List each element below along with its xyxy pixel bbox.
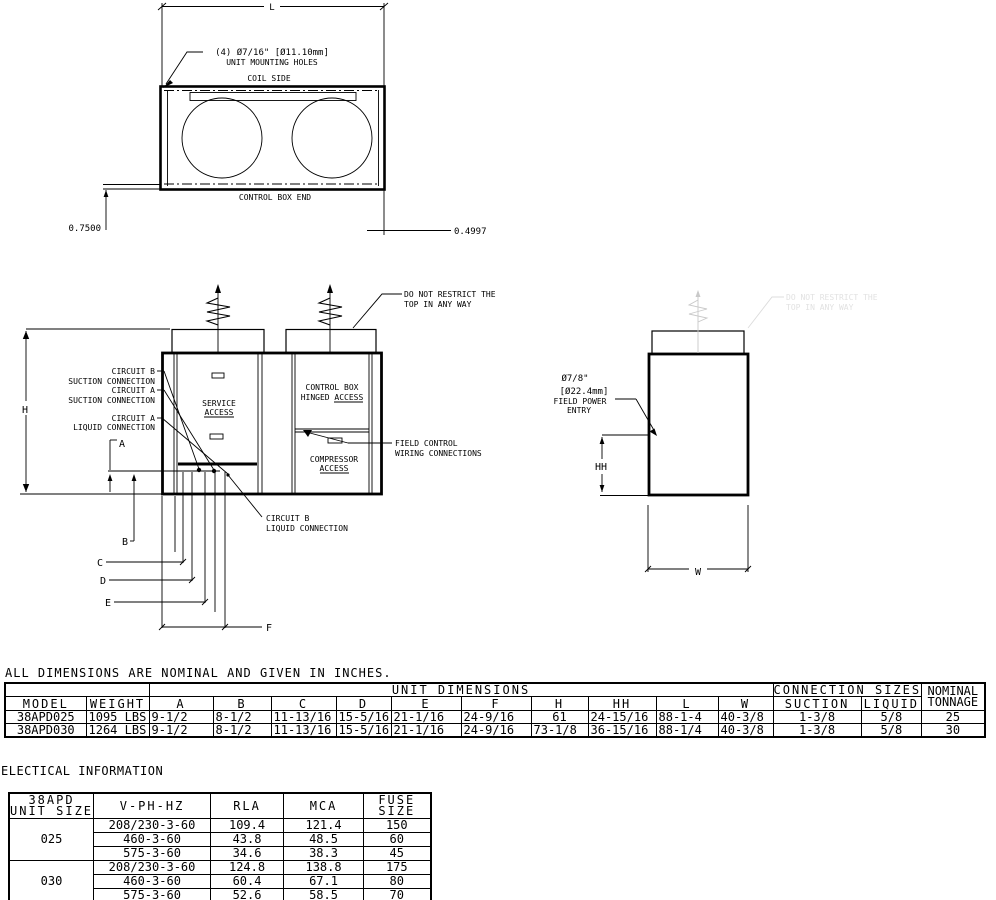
dim-l-label: L: [269, 3, 274, 13]
mounting-holes-label-2: UNIT MOUNTING HOLES: [226, 58, 318, 67]
col-model: MODEL: [5, 697, 86, 711]
dim-cell: 15-5/16: [336, 724, 391, 738]
control-box-label-1: CONTROL BOX: [306, 383, 359, 392]
rla-cell: 109.4: [211, 818, 284, 832]
fuse-size-header: FUSE SIZE: [364, 793, 431, 818]
dim-cell: 21-1/16: [391, 724, 461, 738]
dimensions-note: ALL DIMENSIONS ARE NOMINAL AND GIVEN IN …: [5, 666, 392, 680]
voltage-cell: 208/230-3-60: [94, 860, 211, 874]
table-row: 025 208/230-3-60 109.4 121.4 150: [9, 818, 431, 832]
fuse-cell: 60: [364, 832, 431, 846]
electrical-table: 38APD UNIT SIZE V-PH-HZ RLA MCA FUSE SIZ…: [8, 792, 432, 900]
dim-cell: 24-15/16: [588, 711, 656, 724]
col-h: H: [531, 697, 588, 711]
col-l: L: [656, 697, 718, 711]
mca-cell: 138.8: [284, 860, 364, 874]
service-access-label-2: ACCESS: [205, 408, 234, 417]
tonnage-label: TONNAGE: [928, 695, 979, 709]
dim-b-label: B: [122, 537, 128, 548]
unit-dimensions-table: UNIT DIMENSIONS CONNECTION SIZES NOMINAL…: [4, 682, 986, 738]
circuit-a-suction-label-2: SUCTION CONNECTION: [68, 396, 155, 405]
dim-cell: 61: [531, 711, 588, 724]
dim-h-label: H: [22, 405, 28, 416]
do-not-restrict-label-1: DO NOT RESTRICT THE: [404, 290, 496, 299]
dim-cell: 88-1-4: [656, 711, 718, 724]
dim-e-label: E: [105, 598, 111, 609]
suction-cell: 1-3/8: [773, 711, 861, 724]
voltage-cell: 575-3-60: [94, 888, 211, 900]
col-weight: WEIGHT: [86, 697, 149, 711]
vphhz-header: V-PH-HZ: [94, 793, 211, 818]
fuse-cell: 70: [364, 888, 431, 900]
circuit-a-suction-label-1: CIRCUIT A: [112, 386, 156, 395]
cad-drawing: L (4) Ø7/16" [Ø11.10mm] UNIT MOUNTING HO…: [0, 0, 996, 660]
dim-cell: 8-1/2: [213, 724, 271, 738]
dim-cell: 9-1/2: [149, 724, 213, 738]
rla-cell: 124.8: [211, 860, 284, 874]
col-hh: HH: [588, 697, 656, 711]
dim-cell: 24-9/16: [461, 724, 531, 738]
dim-cell: 21-1/16: [391, 711, 461, 724]
col-w: W: [718, 697, 773, 711]
dim-cell: 9-1/2: [149, 711, 213, 724]
col-c: C: [271, 697, 336, 711]
dim-cell: 8-1/2: [213, 711, 271, 724]
power-entry-label-4: ENTRY: [567, 406, 591, 415]
coil-side-label: COIL SIDE: [247, 74, 291, 83]
dim-cell: 36-15/16: [588, 724, 656, 738]
unit-size-025: 025: [9, 818, 94, 860]
mca-cell: 121.4: [284, 818, 364, 832]
drawing-sheet: L (4) Ø7/16" [Ø11.10mm] UNIT MOUNTING HO…: [0, 0, 996, 900]
dim-w-label: W: [695, 567, 702, 578]
unit-dimensions-header: UNIT DIMENSIONS: [149, 683, 773, 697]
voltage-cell: 460-3-60: [94, 874, 211, 888]
circuit-a-liquid-label-2: LIQUID CONNECTION: [73, 423, 155, 432]
dim-a-label: A: [119, 439, 125, 450]
circuit-b-suction-label-1: CIRCUIT B: [112, 367, 156, 376]
dim-0-7500: 0.7500: [68, 224, 101, 234]
service-access-label-1: SERVICE: [202, 399, 236, 408]
voltage-cell: 208/230-3-60: [94, 818, 211, 832]
field-control-label-2: WIRING CONNECTIONS: [395, 449, 482, 458]
mounting-holes-label-1: (4) Ø7/16" [Ø11.10mm]: [215, 47, 329, 58]
unit-size-header: 38APD UNIT SIZE: [9, 793, 94, 818]
unit-size-030: 030: [9, 860, 94, 900]
dim-0-4997: 0.4997: [454, 227, 487, 237]
field-control-label-1: FIELD CONTROL: [395, 439, 458, 448]
table-row: 38APD025 1095 LBS 9-1/2 8-1/2 11-13/16 1…: [5, 711, 985, 724]
compressor-access-label-1: COMPRESSOR: [310, 455, 358, 464]
fuse-header-line2: SIZE: [378, 804, 415, 818]
dim-d-label: D: [100, 576, 106, 587]
nominal-tonnage-header: NOMINAL TONNAGE: [922, 683, 985, 711]
circuit-b-liquid-label-1: CIRCUIT B: [266, 514, 310, 523]
col-a: A: [149, 697, 213, 711]
do-not-restrict-label-2: TOP IN ANY WAY: [404, 300, 472, 309]
dim-c-label: C: [97, 558, 103, 569]
liquid-cell: 5/8: [861, 724, 922, 738]
mca-header: MCA: [284, 793, 364, 818]
power-entry-label-3: FIELD POWER: [554, 397, 607, 406]
faint-do-not-restrict-label-2: TOP IN ANY WAY: [786, 303, 854, 312]
liquid-cell: 5/8: [861, 711, 922, 724]
connection-sizes-header: CONNECTION SIZES: [773, 683, 922, 697]
mca-cell: 38.3: [284, 846, 364, 860]
model-cell: 38APD030: [5, 724, 86, 738]
rla-cell: 60.4: [211, 874, 284, 888]
tonnage-cell: 25: [922, 711, 985, 724]
fuse-cell: 80: [364, 874, 431, 888]
weight-cell: 1095 LBS: [86, 711, 149, 724]
col-liquid: LIQUID: [861, 697, 922, 711]
compressor-access-label-2: ACCESS: [320, 464, 349, 473]
rla-cell: 43.8: [211, 832, 284, 846]
mca-cell: 67.1: [284, 874, 364, 888]
faint-spring: [689, 290, 707, 353]
dim-hh-label: HH: [595, 462, 607, 473]
rla-header: RLA: [211, 793, 284, 818]
power-entry-label-2: [Ø22.4mm]: [560, 386, 609, 397]
col-b: B: [213, 697, 271, 711]
dim-cell: 73-1/8: [531, 724, 588, 738]
fuse-cell: 45: [364, 846, 431, 860]
model-cell: 38APD025: [5, 711, 86, 724]
dim-cell: 88-1/4: [656, 724, 718, 738]
circuit-a-liquid-label-1: CIRCUIT A: [112, 414, 156, 423]
table-row: 030 208/230-3-60 124.8 138.8 175: [9, 860, 431, 874]
weight-cell: 1264 LBS: [86, 724, 149, 738]
dim-cell: 11-13/16: [271, 724, 336, 738]
dim-cell: 11-13/16: [271, 711, 336, 724]
col-d: D: [336, 697, 391, 711]
suction-cell: 1-3/8: [773, 724, 861, 738]
dim-cell: 40-3/8: [718, 711, 773, 724]
tonnage-cell: 30: [922, 724, 985, 738]
col-f: F: [461, 697, 531, 711]
control-box-label-2: HINGED ACCESS: [301, 393, 364, 402]
fuse-cell: 150: [364, 818, 431, 832]
dim-cell: 40-3/8: [718, 724, 773, 738]
fuse-cell: 175: [364, 860, 431, 874]
mca-cell: 58.5: [284, 888, 364, 900]
rla-cell: 52.6: [211, 888, 284, 900]
voltage-cell: 575-3-60: [94, 846, 211, 860]
dim-cell: 15-5/16: [336, 711, 391, 724]
faint-do-not-restrict-label-1: DO NOT RESTRICT THE: [786, 293, 878, 302]
dim-cell: 24-9/16: [461, 711, 531, 724]
rla-cell: 34.6: [211, 846, 284, 860]
corner-cell: [5, 683, 149, 697]
dim-f-label: F: [266, 623, 272, 634]
side-view: [600, 290, 784, 572]
electrical-title: ELECTICAL INFORMATION: [1, 764, 163, 778]
control-box-end-label: CONTROL BOX END: [239, 193, 311, 202]
col-e: E: [391, 697, 461, 711]
power-entry-label-1: Ø7/8": [561, 373, 588, 384]
col-suction: SUCTION: [773, 697, 861, 711]
circuit-b-suction-label-2: SUCTION CONNECTION: [68, 377, 155, 386]
unit-size-header-line2: UNIT SIZE: [10, 804, 93, 818]
table-row: 38APD030 1264 LBS 9-1/2 8-1/2 11-13/16 1…: [5, 724, 985, 738]
circuit-b-liquid-label-2: LIQUID CONNECTION: [266, 524, 348, 533]
voltage-cell: 460-3-60: [94, 832, 211, 846]
mca-cell: 48.5: [284, 832, 364, 846]
